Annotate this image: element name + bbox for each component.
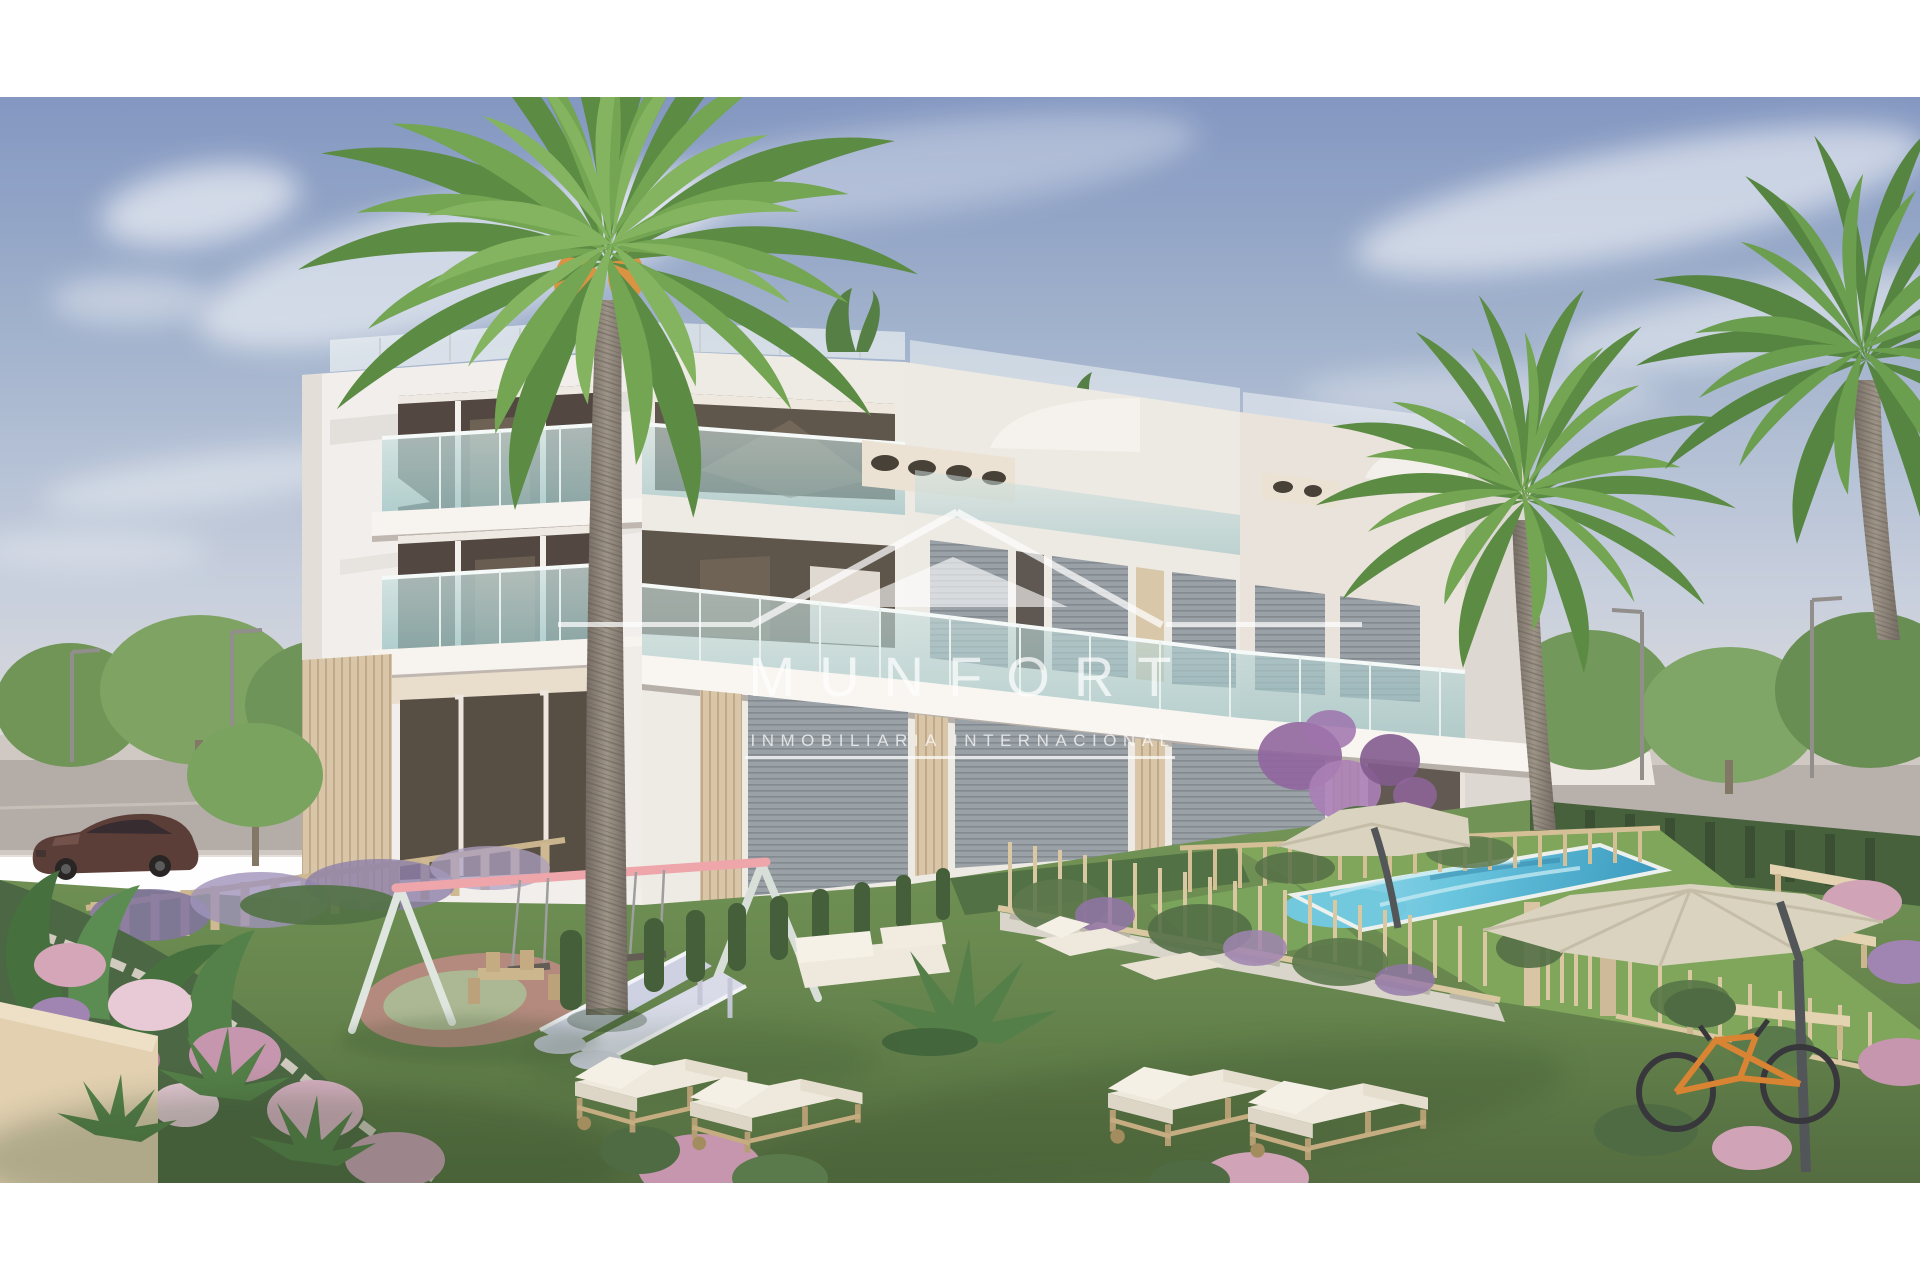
haze-overlay [0, 97, 1920, 1183]
logo-baseline-left [558, 622, 754, 627]
watermark-tagline: INMOBILIARIA INTERNACIONAL [751, 731, 1176, 750]
watermark-underline [745, 756, 1175, 759]
watermark-brand: MUNFORT [749, 645, 1196, 708]
real-estate-render-image: MUNFORT INMOBILIARIA INTERNACIONAL [0, 0, 1920, 1280]
logo-baseline-right [1166, 622, 1362, 627]
scene-svg: MUNFORT INMOBILIARIA INTERNACIONAL [0, 97, 1920, 1183]
photo-area: MUNFORT INMOBILIARIA INTERNACIONAL [0, 97, 1920, 1183]
